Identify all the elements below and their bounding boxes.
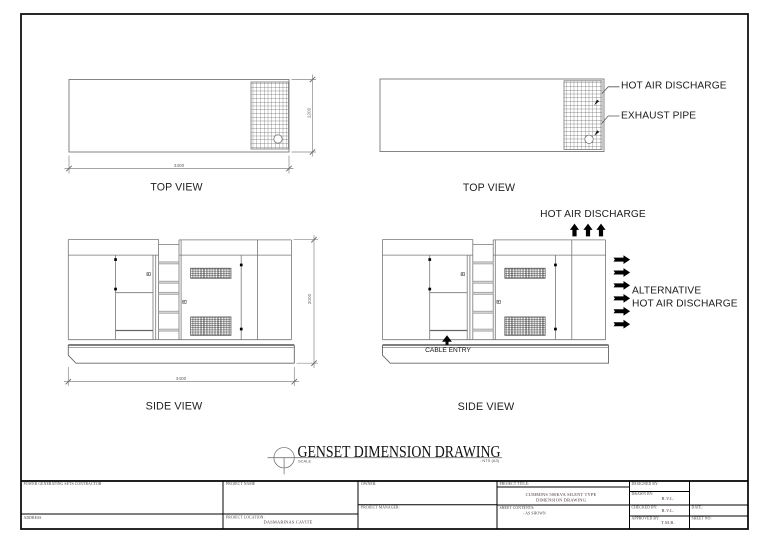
svg-text:POWER GENERATING SETS CONTRACT: POWER GENERATING SETS CONTRACTOR xyxy=(24,482,102,486)
svg-text:PROJECT TITLE:: PROJECT TITLE: xyxy=(500,482,530,486)
svg-text:R.V.L.: R.V.L. xyxy=(662,508,675,513)
svg-text:T.M.B.: T.M.B. xyxy=(661,520,675,525)
svg-text:DIMENSION DRAWING: DIMENSION DRAWING xyxy=(536,498,587,503)
svg-text:TOP VIEW: TOP VIEW xyxy=(150,182,202,194)
svg-text:SIDE VIEW: SIDE VIEW xyxy=(458,401,515,413)
svg-text:PROJECT MANAGER:: PROJECT MANAGER: xyxy=(361,506,400,510)
svg-text:SIDE VIEW: SIDE VIEW xyxy=(146,401,203,413)
svg-text:PROJECT NAME: PROJECT NAME xyxy=(226,482,256,486)
svg-text:HOT AIR DISCHARGE: HOT AIR DISCHARGE xyxy=(540,209,646,220)
svg-text:3400: 3400 xyxy=(174,163,185,168)
svg-text:1200: 1200 xyxy=(307,107,312,118)
svg-text:HOT AIR DISCHARGE: HOT AIR DISCHARGE xyxy=(632,298,738,309)
svg-text:CABLE ENTRY: CABLE ENTRY xyxy=(425,347,471,354)
svg-text:ADDRESS: ADDRESS xyxy=(24,516,42,520)
svg-text:HOT AIR DISCHARGE: HOT AIR DISCHARGE xyxy=(621,81,727,92)
svg-text:2000: 2000 xyxy=(307,293,312,304)
svg-text:APPROVED BY:: APPROVED BY: xyxy=(632,517,660,521)
svg-text:R.V.L.: R.V.L. xyxy=(662,496,675,501)
svg-text:- AS SHOWN: - AS SHOWN xyxy=(523,511,546,515)
svg-text:SHEET CONTENTS:: SHEET CONTENTS: xyxy=(500,506,535,510)
svg-text:DATE:: DATE: xyxy=(692,506,703,510)
svg-text:OWNER:: OWNER: xyxy=(361,482,377,486)
svg-text:DASMARINAS CAVITE: DASMARINAS CAVITE xyxy=(263,520,312,525)
svg-text:PROJECT LOCATION:: PROJECT LOCATION: xyxy=(226,516,265,520)
svg-text:GENSET DIMENSION DRAWING: GENSET DIMENSION DRAWING xyxy=(298,442,501,461)
svg-text:CUMMINS 500KVA SILENT TYPE: CUMMINS 500KVA SILENT TYPE xyxy=(526,492,597,497)
svg-text:DRAWN BY:: DRAWN BY: xyxy=(632,492,654,496)
svg-text:EXHAUST PIPE: EXHAUST PIPE xyxy=(621,111,696,122)
svg-text:3400: 3400 xyxy=(176,376,187,381)
svg-text:SCALE: SCALE xyxy=(298,459,311,464)
svg-text:DESIGNED BY:: DESIGNED BY: xyxy=(632,482,659,486)
svg-text:ALTERNATIVE: ALTERNATIVE xyxy=(632,285,701,296)
svg-text:: NTS (A3): : NTS (A3) xyxy=(480,458,500,463)
svg-text:TOP VIEW: TOP VIEW xyxy=(463,182,515,194)
svg-text:SHEET NO:: SHEET NO: xyxy=(692,517,712,521)
svg-text:CHECKED BY:: CHECKED BY: xyxy=(632,506,658,510)
